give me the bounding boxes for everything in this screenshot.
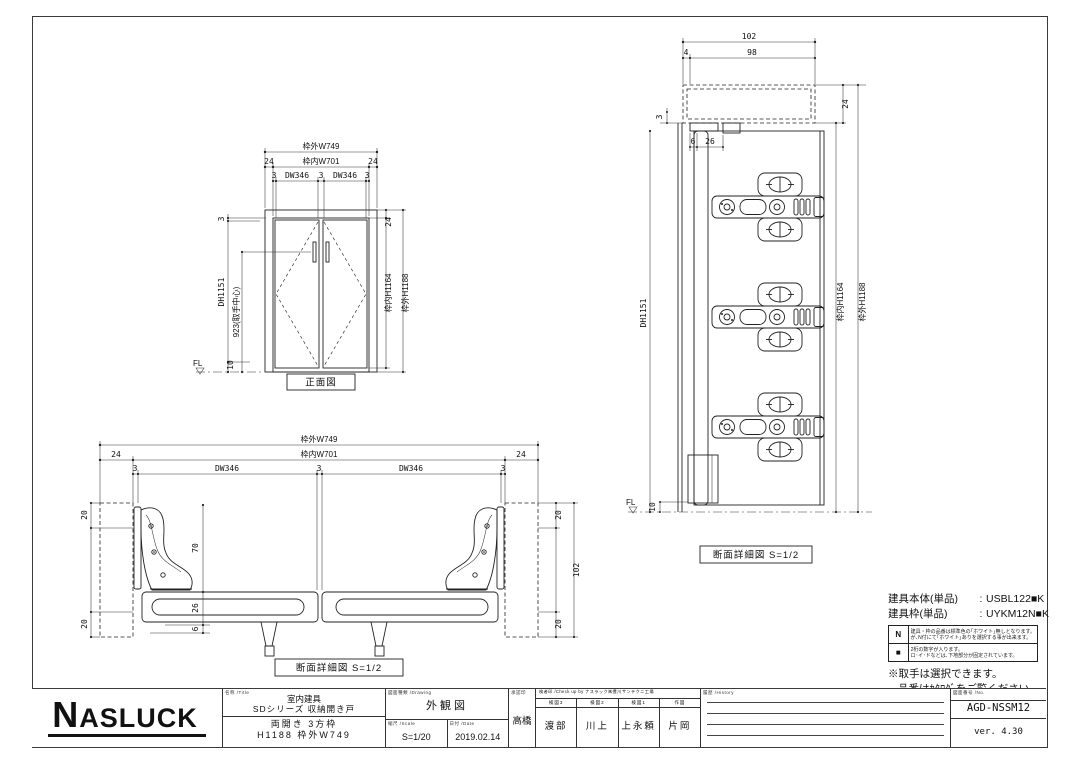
approval-header: 承認印 <box>511 690 526 696</box>
dim-label: DH1151 <box>639 298 648 327</box>
dim-label: 24 <box>384 217 393 227</box>
note-line: が､N付にて｢ホワイト｣ありを選択する事が出来ます。 <box>911 635 1035 641</box>
side-section-view: 102 4 98 3 24 6 26 <box>626 32 872 563</box>
separator: : <box>976 607 986 622</box>
part-number-notes-table: N 建具・枠の品番は標準色の｢ホワイト｣無しとなります。 が､N付にて｢ホワイト… <box>888 625 1038 662</box>
part-frame-line: 建具枠(単品) : UYKM12N■K <box>888 607 1063 622</box>
check-col-2: 検図2 川上 <box>576 698 617 747</box>
dim-label: 3 <box>655 114 664 119</box>
drawing-type-header: 図面種類 /Drawing <box>388 690 432 696</box>
drawing-title-line1: 室内建具 <box>223 695 385 704</box>
title-header: 名称 /Title <box>225 690 249 696</box>
dim-label: 26 <box>191 603 200 613</box>
note-n-text: 建具・枠の品番は標準色の｢ホワイト｣無しとなります。 が､N付にて｢ホワイト｣あ… <box>908 626 1037 644</box>
check-col-name: 上永頼 <box>619 718 659 732</box>
view-caption: 断面詳細図 S=1/2 <box>296 662 382 674</box>
drawing-title-line2: SDシリーズ 収納開き戸 <box>223 704 385 714</box>
view-caption: 正面図 <box>305 378 337 389</box>
dim-label: 3 <box>133 464 138 473</box>
dim-label: 24 <box>111 450 121 459</box>
check-col-draw: 作図 片岡 <box>659 698 700 747</box>
check-col-header: 検図2 <box>577 698 617 708</box>
part-body-label: 建具本体(単品) <box>888 592 976 607</box>
drawing-title-line3: 両開き 3方枠 <box>223 719 385 730</box>
dim-label: 24 <box>368 157 378 166</box>
approval-cell: 承認印 高橋 <box>508 689 535 747</box>
dim-label: 枠外W749 <box>303 141 340 151</box>
note-key-square: ■ <box>889 644 909 662</box>
dim-label: 24 <box>841 99 850 109</box>
dim-label: 枠内H1164 <box>835 282 845 322</box>
dim-label: 24 <box>264 157 274 166</box>
note-line: ロ･イ･ドなどは､下地部分が固定されています。 <box>911 653 1035 659</box>
part-body-value: USBL122■K <box>986 592 1044 607</box>
dim-label: 3 <box>365 171 370 180</box>
check-col-1: 検図1 上永頼 <box>618 698 659 747</box>
part-body-line: 建具本体(単品) : USBL122■K <box>888 592 1063 607</box>
dim-label: DH1151 <box>217 277 226 306</box>
drawing-sheet: FL 枠外W749 24 枠内W701 24 3 DW346 <box>0 0 1080 764</box>
dim-label: 3 <box>217 216 226 221</box>
dim-label: 枠外H1188 <box>400 273 410 313</box>
parts-info: 建具本体(単品) : USBL122■K 建具枠(単品) : UYKM12N■K… <box>888 592 1063 697</box>
dim-label: 20 <box>80 619 89 629</box>
dim-label: DW346 <box>399 464 423 473</box>
dim-label: 枠内W701 <box>301 449 338 459</box>
date-cell: 日付 /Date 2019.02.14 <box>447 720 509 747</box>
dim-label: 枠内H1164 <box>383 273 393 313</box>
check-columns: 検図3 渡部 検図2 川上 検図1 上永頼 作図 片岡 <box>536 698 700 747</box>
title-cell: 名称 /Title 室内建具 SDシリーズ 収納開き戸 両開き 3方枠 H118… <box>222 689 385 747</box>
history-cell: 履歴 /History <box>700 689 950 747</box>
table-row: N 建具・枠の品番は標準色の｢ホワイト｣無しとなります。 が､N付にて｢ホワイト… <box>889 626 1038 644</box>
scale-date-row: 縮尺 /Scale S=1/20 日付 /Date 2019.02.14 <box>386 719 508 747</box>
dim-label: 3 <box>272 171 277 180</box>
fl-label: FL <box>193 359 203 368</box>
approval-name: 高橋 <box>509 713 535 727</box>
dim-label: 70 <box>191 543 200 553</box>
check-cell: 検者印 /Check up by ナスラック㈱豊川サンテクニ工場 検図3 渡部 … <box>535 689 700 747</box>
history-line <box>707 713 944 714</box>
drawing-version: ver. 4.30 <box>951 727 1046 737</box>
drawing-number: AGD-NSSM12 <box>951 702 1046 719</box>
scale-cell: 縮尺 /Scale S=1/20 <box>386 720 447 747</box>
check-col-3: 検図3 渡部 <box>536 698 576 747</box>
dim-label: 20 <box>554 619 563 629</box>
view-caption: 断面詳細図 S=1/2 <box>713 549 799 561</box>
divider <box>223 716 385 717</box>
note-key-n: N <box>889 626 909 644</box>
check-col-name: 川上 <box>577 718 617 732</box>
date-header: 日付 /Date <box>450 721 475 727</box>
plan-section-view: 枠外W749 24 枠内W701 24 3 DW346 3 DW346 3 20… <box>80 434 581 676</box>
drawing-title-line4: H1188 枠外W749 <box>223 730 385 741</box>
scale-value: S=1/20 <box>386 732 447 742</box>
note-square-text: 2桁の数字が入ります。 ロ･イ･ドなどは､下地部分が固定されています。 <box>908 644 1037 662</box>
dim-label: 20 <box>554 510 563 520</box>
history-line <box>707 724 944 725</box>
number-header-row: 図面番号 /No. <box>951 689 1046 701</box>
fl-label: FL <box>626 498 636 507</box>
drawing-type-value: 外観図 <box>386 697 508 713</box>
dim-label: 6 <box>191 626 200 631</box>
check-col-name: 片岡 <box>660 718 700 732</box>
front-view: FL 枠外W749 24 枠内W701 24 3 DW346 <box>193 141 410 390</box>
title-block: NASLUCK 名称 /Title 室内建具 SDシリーズ 収納開き戸 両開き … <box>32 688 1046 747</box>
note-line: 建具・枠の品番は標準色の｢ホワイト｣無しとなります。 <box>911 629 1035 635</box>
nasluck-logo: NASLUCK <box>48 700 206 737</box>
dim-label: 102 <box>742 32 757 41</box>
dim-label: 102 <box>572 563 581 578</box>
check-col-header: 作図 <box>660 698 700 708</box>
dim-label: 6 <box>691 137 696 146</box>
dim-label: DW346 <box>333 171 357 180</box>
dim-label: DW346 <box>285 171 309 180</box>
part-frame-value: UYKM12N■K <box>986 607 1049 622</box>
dim-label: 3 <box>317 464 322 473</box>
table-row: ■ 2桁の数字が入ります。 ロ･イ･ドなどは､下地部分が固定されています。 <box>889 644 1038 662</box>
dim-label: 4 <box>684 48 689 57</box>
separator: : <box>976 592 986 607</box>
dim-label: 3 <box>319 171 324 180</box>
dim-label: 枠内W701 <box>303 156 340 166</box>
dim-label: 98 <box>747 48 757 57</box>
dim-label: 3 <box>501 464 506 473</box>
history-line <box>707 702 944 703</box>
dim-label: 20 <box>80 510 89 520</box>
logo-cell: NASLUCK <box>32 689 222 747</box>
dim-label: 10 <box>226 360 235 370</box>
dim-label: 923(取手中心) <box>231 286 241 337</box>
history-line <box>707 735 944 736</box>
drawing-number-cell: 図面番号 /No. AGD-NSSM12 ver. 4.30 <box>950 689 1046 747</box>
scale-header: 縮尺 /Scale <box>388 721 415 727</box>
dim-label: DW346 <box>215 464 239 473</box>
dim-label: 10 <box>648 502 657 512</box>
check-col-name: 渡部 <box>536 718 576 732</box>
dim-label: 26 <box>705 137 715 146</box>
drawing-type-cell: 図面種類 /Drawing 外観図 縮尺 /Scale S=1/20 日付 /D… <box>385 689 508 747</box>
part-frame-label: 建具枠(単品) <box>888 607 976 622</box>
check-col-header: 検図1 <box>619 698 659 708</box>
dim-label: 枠外H1188 <box>857 282 867 322</box>
dim-label: 枠外W749 <box>301 434 338 444</box>
date-value: 2019.02.14 <box>448 732 509 742</box>
dim-label: 24 <box>516 450 526 459</box>
history-header: 履歴 /History <box>703 690 734 696</box>
check-col-header: 検図3 <box>536 698 576 708</box>
number-header: 図面番号 /No. <box>953 690 985 696</box>
handle-remark: ※取手は選択できます。 <box>888 667 1063 682</box>
